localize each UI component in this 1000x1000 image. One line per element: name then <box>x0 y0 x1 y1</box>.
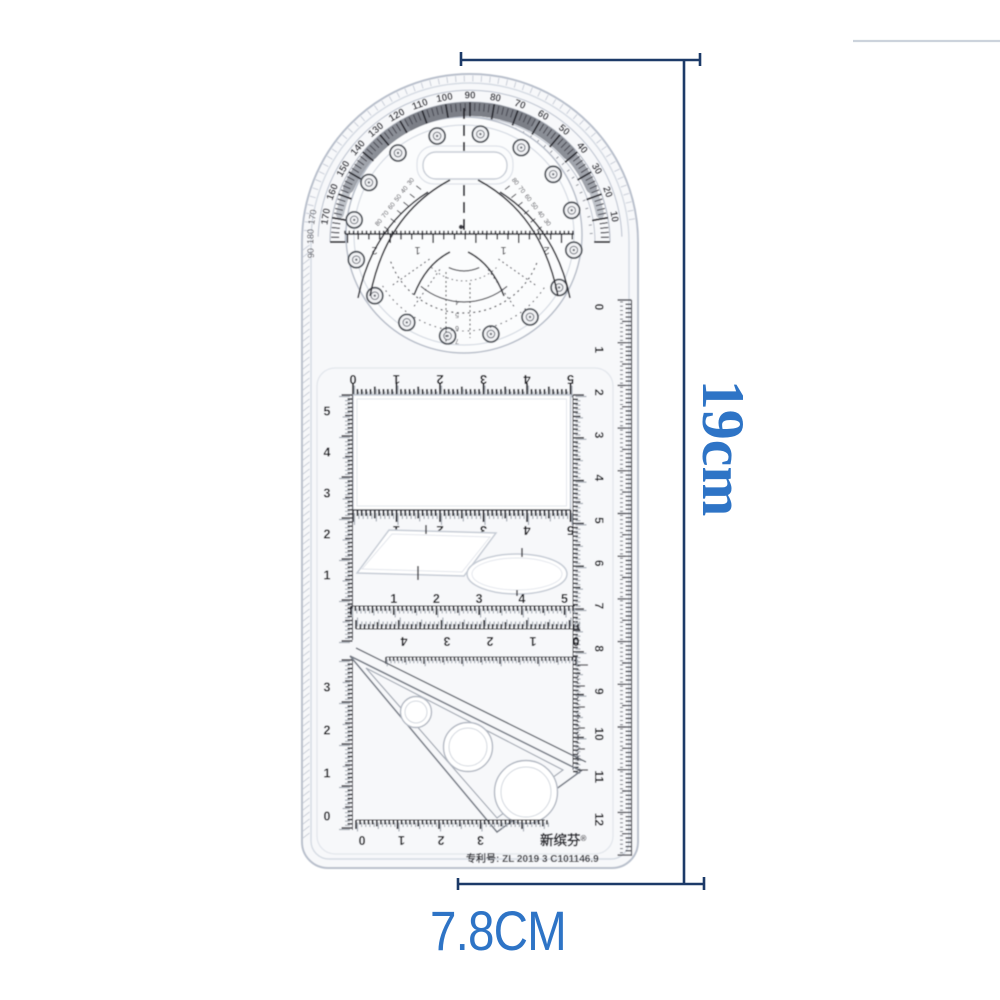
svg-text:0: 0 <box>349 372 356 387</box>
svg-text:3: 3 <box>480 372 487 387</box>
svg-text:2: 2 <box>436 372 443 387</box>
svg-text:0: 0 <box>572 634 579 648</box>
svg-text:6: 6 <box>455 324 459 331</box>
svg-text:2: 2 <box>324 527 331 541</box>
svg-text:0: 0 <box>358 833 365 847</box>
svg-text:1: 1 <box>529 634 536 648</box>
svg-text:4: 4 <box>523 372 531 387</box>
svg-text:3: 3 <box>592 432 606 439</box>
svg-text:4: 4 <box>518 592 525 606</box>
svg-text:5: 5 <box>567 372 574 387</box>
svg-text:8: 8 <box>592 645 606 652</box>
svg-text:1: 1 <box>500 244 506 256</box>
svg-text:3: 3 <box>477 833 484 847</box>
svg-text:2: 2 <box>433 592 440 606</box>
svg-text:2: 2 <box>486 634 493 648</box>
svg-text:5: 5 <box>324 404 331 418</box>
svg-text:2: 2 <box>371 244 377 256</box>
svg-text:3: 3 <box>324 680 331 694</box>
svg-text:1: 1 <box>592 346 606 353</box>
svg-text:19cm: 19cm <box>690 380 756 517</box>
svg-text:7: 7 <box>592 603 606 610</box>
svg-text:5: 5 <box>561 592 568 606</box>
svg-text:11: 11 <box>592 770 606 783</box>
svg-text:0: 0 <box>592 304 606 311</box>
svg-text:1: 1 <box>390 592 397 606</box>
svg-text:1: 1 <box>393 372 400 387</box>
svg-text:10: 10 <box>592 727 606 741</box>
svg-text:9: 9 <box>592 688 606 695</box>
svg-text:5: 5 <box>455 311 459 318</box>
svg-text:1: 1 <box>324 766 331 780</box>
svg-text:6: 6 <box>592 560 606 567</box>
svg-text:180: 180 <box>305 229 316 244</box>
svg-text:3: 3 <box>476 592 483 606</box>
svg-text:专利号: ZL 2019 3 C101146.9: 专利号: ZL 2019 3 C101146.9 <box>466 852 599 865</box>
svg-text:0: 0 <box>324 809 331 823</box>
svg-text:2: 2 <box>324 723 331 737</box>
svg-text:4: 4 <box>455 298 459 305</box>
svg-text:3: 3 <box>324 486 331 500</box>
svg-text:2: 2 <box>437 833 444 847</box>
svg-text:1: 1 <box>398 833 405 847</box>
svg-text:4: 4 <box>400 634 407 648</box>
svg-text:2: 2 <box>543 244 549 256</box>
svg-text:4: 4 <box>324 445 331 459</box>
svg-text:3: 3 <box>443 634 450 648</box>
svg-text:新缤芬®: 新缤芬® <box>540 832 587 848</box>
svg-text:4: 4 <box>592 474 606 481</box>
svg-text:90: 90 <box>305 248 316 259</box>
svg-text:1: 1 <box>324 568 331 582</box>
svg-text:12: 12 <box>592 813 606 827</box>
svg-text:4: 4 <box>523 523 531 538</box>
svg-text:5: 5 <box>592 517 606 524</box>
svg-text:2: 2 <box>592 389 606 396</box>
svg-text:7: 7 <box>455 337 459 344</box>
svg-text:7.8CM: 7.8CM <box>430 900 566 962</box>
svg-text:90: 90 <box>464 91 476 102</box>
svg-text:1: 1 <box>414 244 420 256</box>
